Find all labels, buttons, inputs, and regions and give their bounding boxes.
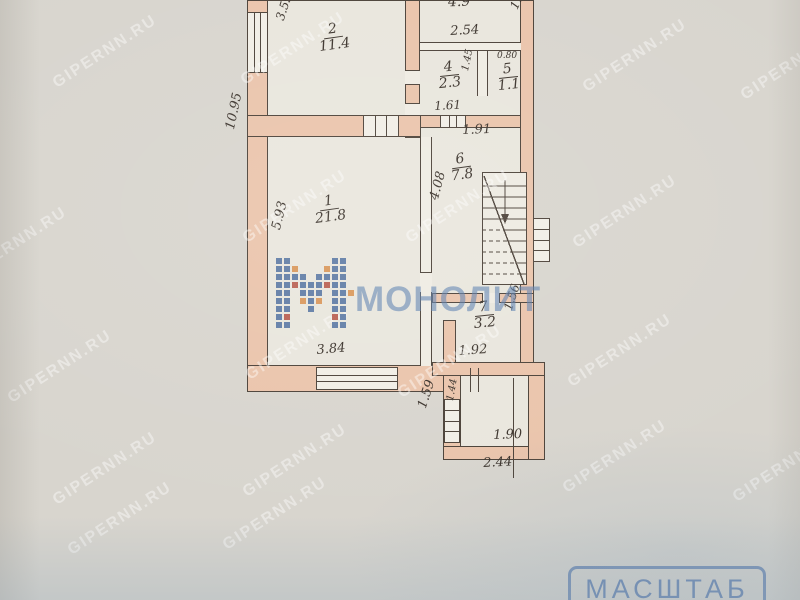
logo-pixel xyxy=(276,314,282,320)
logo-pixel xyxy=(340,314,346,320)
logo-pixel xyxy=(292,282,298,288)
logo-pixel xyxy=(340,322,346,328)
logo-pixel xyxy=(316,298,322,304)
logo-pixel xyxy=(332,298,338,304)
logo-pixel xyxy=(308,282,314,288)
logo-pixel xyxy=(308,290,314,296)
logo-pixel xyxy=(340,274,346,280)
logo-pixel xyxy=(332,274,338,280)
logo-pixel xyxy=(348,290,354,296)
logo-pixel xyxy=(276,274,282,280)
logo-pixel xyxy=(316,290,322,296)
logo-pixel xyxy=(332,314,338,320)
logo-pixel xyxy=(284,258,290,264)
monolit-logo-icon xyxy=(276,258,356,330)
gipernn-watermark: GIPERNN.RU xyxy=(220,474,331,555)
logo-pixel xyxy=(324,274,330,280)
logo-pixel xyxy=(340,290,346,296)
logo-pixel xyxy=(308,306,314,312)
gipernn-watermark: GIPERNN.RU xyxy=(395,322,506,403)
logo-pixel xyxy=(276,282,282,288)
logo-pixel xyxy=(284,282,290,288)
gipernn-watermark: GIPERNN.RU xyxy=(738,24,800,105)
logo-pixel xyxy=(292,266,298,272)
logo-pixel xyxy=(276,290,282,296)
scale-stamp-label: МАСШТАБ xyxy=(585,574,748,600)
scanned-floor-plan-photo: 121.8211.44.942.351.167.873.23.591.92.54… xyxy=(0,0,800,600)
logo-pixel xyxy=(276,266,282,272)
gipernn-watermark: GIPERNN.RU xyxy=(560,417,671,498)
logo-pixel xyxy=(284,274,290,280)
logo-pixel xyxy=(276,258,282,264)
gipernn-watermark: GIPERNN.RU xyxy=(5,327,116,408)
gipernn-watermark: GIPERNN.RU xyxy=(580,16,691,97)
gipernn-watermark: GIPERNN.RU xyxy=(570,172,681,253)
monolit-watermark-text: МОНОЛИТ xyxy=(355,280,541,320)
gipernn-watermark: GIPERNN.RU xyxy=(238,9,349,90)
logo-pixel xyxy=(340,266,346,272)
logo-pixel xyxy=(340,298,346,304)
logo-pixel xyxy=(284,306,290,312)
logo-pixel xyxy=(332,322,338,328)
logo-pixel xyxy=(332,266,338,272)
logo-pixel xyxy=(332,306,338,312)
gipernn-watermark: GIPERNN.RU xyxy=(403,167,514,248)
logo-pixel xyxy=(340,258,346,264)
logo-pixel xyxy=(284,298,290,304)
logo-pixel xyxy=(332,258,338,264)
logo-pixel xyxy=(316,274,322,280)
logo-pixel xyxy=(284,266,290,272)
gipernn-watermark: GIPERNN.RU xyxy=(565,311,676,392)
gipernn-watermark: GIPERNN.RU xyxy=(730,426,800,507)
logo-pixel xyxy=(284,290,290,296)
logo-pixel xyxy=(292,274,298,280)
gipernn-watermark: GIPERNN.RU xyxy=(50,12,161,93)
logo-pixel xyxy=(332,290,338,296)
logo-pixel xyxy=(324,282,330,288)
logo-pixel xyxy=(300,282,306,288)
logo-pixel xyxy=(316,282,322,288)
logo-pixel xyxy=(300,298,306,304)
logo-pixel xyxy=(300,274,306,280)
gipernn-watermark: GIPERNN.RU xyxy=(240,167,351,248)
logo-pixel xyxy=(332,282,338,288)
logo-pixel xyxy=(308,298,314,304)
logo-pixel xyxy=(276,306,282,312)
logo-pixel xyxy=(300,290,306,296)
gipernn-watermark: GIPERNN.RU xyxy=(0,204,71,285)
logo-pixel xyxy=(284,322,290,328)
logo-pixel xyxy=(284,314,290,320)
logo-pixel xyxy=(340,306,346,312)
scale-stamp: МАСШТАБ xyxy=(568,566,766,600)
logo-pixel xyxy=(324,266,330,272)
logo-pixel xyxy=(340,282,346,288)
logo-pixel xyxy=(276,322,282,328)
logo-pixel xyxy=(276,298,282,304)
